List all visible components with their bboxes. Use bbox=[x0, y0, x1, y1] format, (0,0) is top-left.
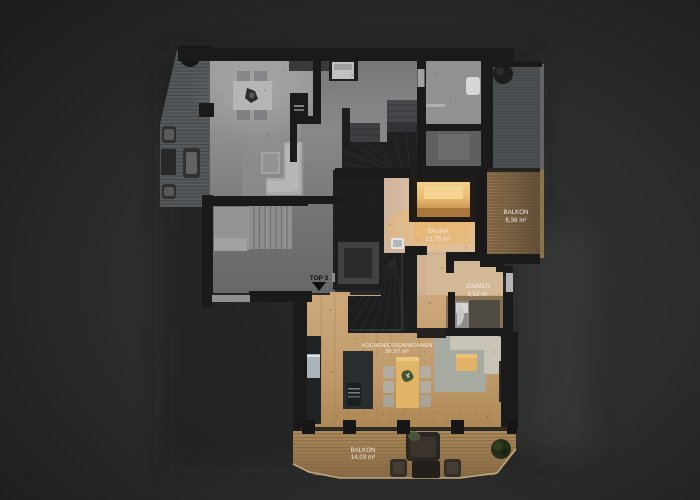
svg-text:12,75 m²: 12,75 m² bbox=[426, 237, 450, 243]
svg-text:BALKON: BALKON bbox=[351, 448, 376, 454]
svg-text:36,97 m²: 36,97 m² bbox=[385, 349, 409, 355]
svg-text:SAUNA: SAUNA bbox=[427, 229, 448, 235]
svg-text:14,03 m²: 14,03 m² bbox=[351, 455, 375, 461]
svg-text:BALKON: BALKON bbox=[504, 210, 529, 216]
svg-text:5,52 m²: 5,52 m² bbox=[467, 292, 488, 298]
svg-text:ZIMMER: ZIMMER bbox=[466, 284, 491, 290]
svg-text:6,38 m²: 6,38 m² bbox=[505, 218, 526, 224]
svg-text:TOP 3: TOP 3 bbox=[310, 275, 329, 282]
